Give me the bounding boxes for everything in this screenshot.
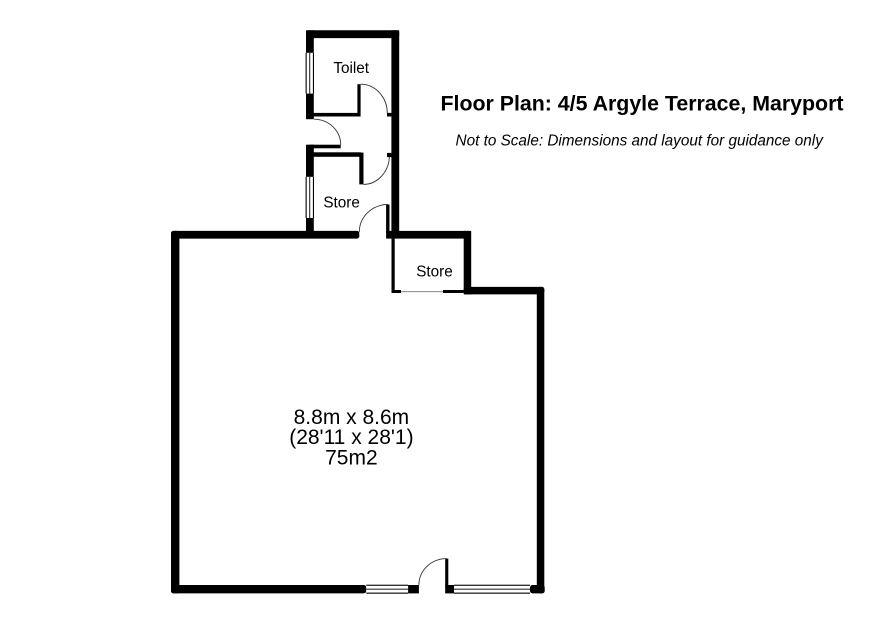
svg-text:75m2: 75m2 xyxy=(325,447,378,470)
svg-text:Floor Plan: 4/5 Argyle Terrace: Floor Plan: 4/5 Argyle Terrace, Maryport xyxy=(441,92,844,116)
svg-text:Store: Store xyxy=(416,263,453,280)
svg-text:Toilet: Toilet xyxy=(333,60,369,77)
svg-text:Store: Store xyxy=(323,194,360,211)
svg-text:Not to Scale: Dimensions and l: Not to Scale: Dimensions and layout for … xyxy=(456,133,825,150)
